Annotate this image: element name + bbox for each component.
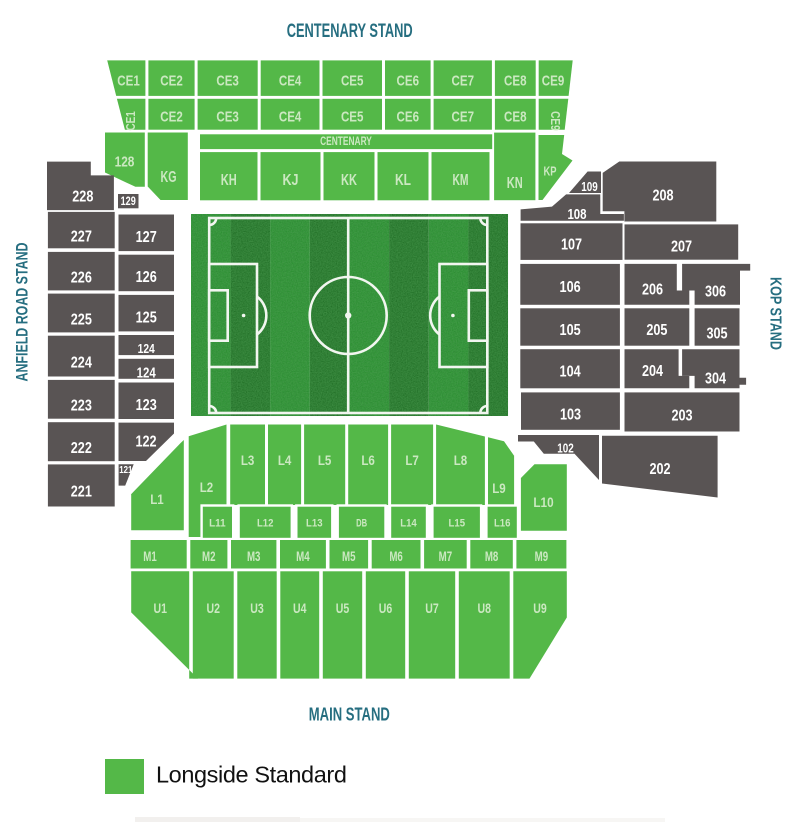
svg-text:U5: U5 [336,601,350,616]
svg-text:CENTENARY STAND: CENTENARY STAND [287,21,413,42]
svg-text:124: 124 [137,366,156,382]
svg-text:CE3: CE3 [216,109,239,126]
svg-text:M2: M2 [202,549,216,564]
svg-text:KG: KG [161,169,177,186]
svg-text:U3: U3 [250,601,264,616]
svg-text:M3: M3 [247,549,261,564]
svg-text:CE5: CE5 [341,73,364,90]
svg-text:304: 304 [705,370,726,387]
svg-text:CE3: CE3 [216,73,239,90]
svg-text:KOP STAND: KOP STAND [767,277,784,350]
svg-text:225: 225 [71,311,92,328]
svg-text:221: 221 [71,484,92,501]
svg-text:L4: L4 [278,453,292,468]
svg-text:124: 124 [138,341,156,356]
svg-text:M1: M1 [143,549,157,564]
svg-text:104: 104 [560,364,581,381]
svg-text:224: 224 [71,354,92,371]
svg-text:CE9: CE9 [548,111,563,130]
svg-text:L5: L5 [318,453,332,468]
svg-text:Longside Standard: Longside Standard [156,762,347,788]
svg-text:KJ: KJ [283,172,299,189]
svg-text:KM: KM [453,172,469,189]
svg-text:CE8: CE8 [504,109,527,126]
svg-text:306: 306 [705,283,726,300]
svg-text:U1: U1 [153,601,167,616]
svg-text:M4: M4 [296,549,310,564]
svg-text:206: 206 [642,281,663,298]
svg-text:203: 203 [671,407,692,424]
svg-text:U4: U4 [293,601,307,616]
svg-text:305: 305 [706,325,727,342]
svg-text:DB: DB [356,518,367,530]
svg-text:202: 202 [649,461,670,478]
svg-text:109: 109 [581,180,598,194]
svg-text:CE2: CE2 [160,109,183,126]
svg-text:U9: U9 [533,601,547,616]
svg-text:223: 223 [71,398,92,415]
svg-text:M7: M7 [439,549,453,564]
svg-text:123: 123 [136,397,157,414]
svg-text:CE5: CE5 [341,109,364,126]
svg-text:125: 125 [136,309,157,326]
svg-text:129: 129 [121,196,136,208]
svg-text:CE7: CE7 [452,109,475,126]
svg-text:KH: KH [221,172,237,189]
svg-text:205: 205 [646,322,667,339]
svg-text:CE1: CE1 [123,111,138,130]
svg-text:KL: KL [395,172,411,189]
svg-text:KP: KP [544,164,557,179]
svg-text:226: 226 [71,269,92,286]
svg-text:L8: L8 [454,453,468,468]
svg-text:107: 107 [561,236,582,253]
svg-text:L7: L7 [405,453,419,468]
svg-text:CE2: CE2 [160,73,183,90]
svg-text:CE6: CE6 [397,109,420,126]
svg-text:L14: L14 [400,518,417,530]
svg-text:U7: U7 [425,601,439,616]
svg-text:L16: L16 [494,518,511,530]
svg-text:106: 106 [560,279,581,296]
svg-text:L15: L15 [449,518,466,530]
svg-text:M9: M9 [535,549,549,564]
svg-text:204: 204 [642,363,663,380]
svg-text:L3: L3 [241,453,255,468]
svg-text:U6: U6 [379,601,393,616]
svg-text:L12: L12 [257,518,274,530]
svg-text:U8: U8 [477,601,491,616]
svg-text:127: 127 [136,229,157,246]
svg-text:CE7: CE7 [452,73,475,90]
svg-text:222: 222 [71,440,92,457]
svg-text:CENTENARY: CENTENARY [320,136,372,148]
svg-text:KK: KK [341,172,357,189]
svg-text:108: 108 [567,207,586,223]
svg-text:L1: L1 [150,492,164,507]
svg-text:208: 208 [652,187,673,204]
svg-text:ANFIELD ROAD STAND: ANFIELD ROAD STAND [14,242,32,381]
svg-text:KN: KN [507,175,523,192]
svg-text:105: 105 [560,322,581,339]
svg-text:102: 102 [557,442,574,456]
svg-text:L2: L2 [200,480,214,495]
svg-text:CE1: CE1 [117,73,140,90]
svg-text:228: 228 [72,188,93,205]
svg-text:L9: L9 [492,481,506,496]
svg-text:122: 122 [135,433,156,450]
svg-text:MAIN STAND: MAIN STAND [309,704,390,724]
svg-text:CE6: CE6 [397,73,420,90]
svg-text:M5: M5 [342,549,356,564]
svg-text:121: 121 [119,465,133,476]
svg-text:207: 207 [671,238,692,255]
svg-text:CE8: CE8 [504,73,527,90]
svg-text:CE9: CE9 [542,73,565,90]
svg-text:U2: U2 [206,601,220,616]
svg-text:L11: L11 [209,518,226,530]
svg-text:227: 227 [71,228,92,245]
svg-text:CE4: CE4 [279,109,302,126]
svg-text:M8: M8 [485,549,499,564]
svg-text:M6: M6 [389,549,403,564]
svg-text:L13: L13 [306,518,323,530]
svg-text:L6: L6 [361,453,375,468]
svg-text:128: 128 [115,153,135,170]
svg-text:CE4: CE4 [279,73,302,90]
svg-text:126: 126 [136,269,157,286]
svg-text:L10: L10 [533,495,553,510]
svg-text:103: 103 [560,406,581,423]
